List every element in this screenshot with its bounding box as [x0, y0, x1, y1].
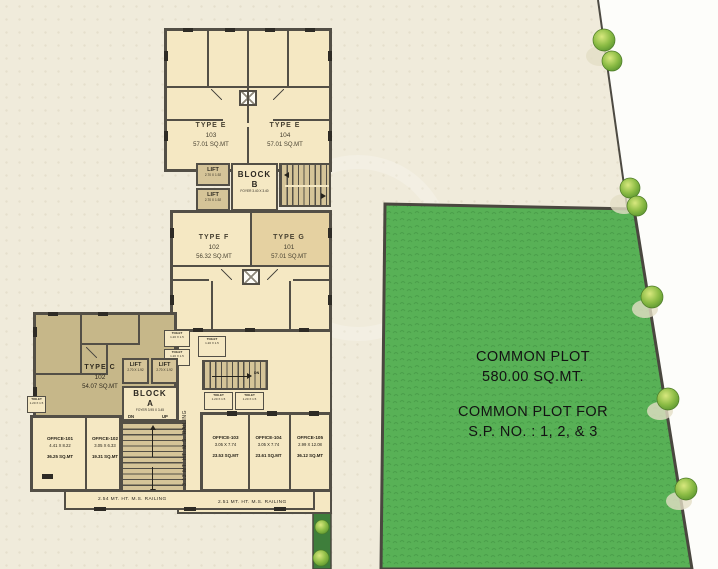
- stair-arrow-icon: [150, 425, 156, 430]
- stair-stem: [212, 376, 248, 377]
- column-mark: [94, 507, 106, 511]
- common-plot-name: COMMON PLOT: [425, 348, 641, 368]
- common-plot-for-line1: COMMON PLOT FOR: [425, 403, 641, 423]
- block-letter: A: [122, 399, 178, 409]
- office-102-label: OFFICE-102 3.05 X 6.33 19.31 SQ.MT: [88, 436, 122, 461]
- stair-dn-label: DN: [128, 414, 134, 419]
- office-name: OFFICE-102: [88, 436, 122, 443]
- wall: [293, 279, 329, 281]
- stair-arrow-icon: [321, 193, 326, 199]
- door-swing: [221, 269, 232, 280]
- wall: [138, 315, 140, 343]
- tree-icon: [675, 478, 697, 500]
- toilet-box: TOILET 1.20 X 1.5: [235, 392, 264, 410]
- duct-shaft: [242, 269, 260, 285]
- window-mark: [193, 328, 203, 332]
- tree-icon: [657, 388, 679, 410]
- site-plan: COMMON PLOT 580.00 SQ.MT. COMMON PLOT FO…: [0, 0, 718, 569]
- door-swing: [86, 347, 97, 358]
- tree-icon: [602, 51, 622, 71]
- window-mark: [33, 327, 37, 337]
- column-mark: [274, 507, 286, 511]
- unit-area: 57.01 SQ.MT: [255, 253, 323, 262]
- lift-a1: LIFT 2.70 X 1.92: [122, 358, 149, 384]
- door-swing: [273, 89, 284, 100]
- offices-101-102: OFFICE-101 4.41 X 8.22 36.25 SQ.MT OFFIC…: [30, 415, 122, 492]
- railing-label-left: 2.54 MT. HT. M.S. RAILING: [98, 497, 167, 502]
- tree-icon: [641, 286, 663, 308]
- lift-dims: 2.70 X 1.92: [124, 368, 147, 372]
- bush-icon: [315, 520, 329, 534]
- lift-dims: 2.70 X 1.92: [153, 368, 176, 372]
- stair-up-label: UP: [162, 414, 168, 419]
- block-b-label: BLOCK B FOYER 3.40 X 3.40: [231, 170, 278, 194]
- office-area: 36.12 SQ.MT: [290, 453, 330, 460]
- toilet-dims: 1.20 X 1.5: [28, 402, 45, 406]
- unit-number: 101: [255, 243, 323, 252]
- common-plot-area-text: 580.00 SQ.MT.: [425, 368, 641, 388]
- office-name: OFFICE-103: [204, 435, 247, 442]
- door-mark: [227, 411, 237, 416]
- unit-label-type-e-103: TYPE E 103 57.01 SQ.MT: [179, 121, 243, 149]
- office-dims: 3.05 X 6.33: [88, 443, 122, 449]
- wall: [250, 213, 252, 267]
- window-mark: [170, 228, 174, 238]
- toilet-box: TOILET 1.20 X 1.5: [204, 392, 233, 410]
- offices-103-105: OFFICE-103 3.05 X 7.74 23.53 SQ.MT OFFIC…: [200, 412, 332, 492]
- unit-number: 103: [179, 131, 243, 140]
- building-block-b-floor: TYPE E 103 57.01 SQ.MT TYPE E 104 57.01 …: [164, 28, 332, 172]
- unit-area: 56.32 SQ.MT: [181, 253, 247, 262]
- wall: [247, 31, 249, 123]
- toilet-box: TOILET 1.20 X 1.5: [198, 336, 226, 357]
- window-mark: [328, 228, 332, 238]
- wall: [80, 343, 140, 345]
- toilet-dims: 1.20 X 1.5: [165, 336, 189, 340]
- window-mark: [328, 131, 332, 141]
- window-mark: [170, 295, 174, 305]
- tree-icon: [620, 178, 640, 198]
- unit-number: 102: [181, 243, 247, 252]
- window-mark: [183, 28, 193, 32]
- lift-a2: LIFT 2.70 X 1.92: [151, 358, 178, 384]
- window-mark: [98, 312, 108, 316]
- wall: [173, 279, 209, 281]
- door-swing: [211, 89, 222, 100]
- tree-icon: [593, 29, 615, 51]
- toilet-dims: 1.20 X 1.5: [205, 398, 232, 402]
- unit-type: TYPE E: [253, 121, 317, 131]
- toilet-dims: 1.20 X 1.5: [236, 398, 263, 402]
- tree-icon: [627, 196, 647, 216]
- office-name: OFFICE-105: [290, 435, 330, 442]
- lift-dims: 2.70 X 1.92: [198, 173, 228, 177]
- stair-dn-label: DN: [254, 371, 259, 375]
- office-101-label: OFFICE-101 4.41 X 8.22 36.25 SQ.MT: [36, 436, 84, 461]
- wall: [207, 31, 209, 88]
- common-plot-for-line2: S.P. NO. : 1, 2, & 3: [425, 423, 641, 443]
- wall: [289, 281, 291, 329]
- lift-dims: 2.70 X 1.92: [198, 198, 228, 202]
- foyer-dims: FOYER 3.95 X 3.45: [122, 409, 178, 413]
- unit-type: TYPE E: [179, 121, 243, 131]
- railing-label-side: 3.13 MT. HT. M.S. RAILING: [182, 385, 193, 510]
- unit-type: TYPE F: [181, 233, 247, 243]
- unit-area: 57.01 SQ.MT: [253, 141, 317, 150]
- stair-stem: [152, 467, 153, 491]
- window-mark: [48, 312, 58, 316]
- foyer-dims: FOYER 3.40 X 3.40: [231, 190, 278, 194]
- stair-landing: [285, 185, 329, 187]
- office-103-label: OFFICE-103 3.05 X 7.74 23.53 SQ.MT: [204, 435, 247, 460]
- office-dims: 3.05 X 7.74: [249, 442, 288, 448]
- window-mark: [328, 51, 332, 61]
- window-mark: [245, 328, 255, 332]
- common-plot-label: COMMON PLOT 580.00 SQ.MT. COMMON PLOT FO…: [425, 348, 641, 442]
- toilet-dims: 1.20 X 1.5: [199, 342, 225, 346]
- office-area: 23.53 SQ.MT: [204, 453, 247, 460]
- block-letter: B: [231, 180, 278, 190]
- office-area: 19.31 SQ.MT: [88, 454, 122, 461]
- unit-area: 57.01 SQ.MT: [179, 141, 243, 150]
- office-dims: 4.41 X 8.22: [36, 443, 84, 449]
- railing-label-right: 2.51 MT. HT. M.S. RAILING: [218, 500, 287, 505]
- wall: [173, 265, 329, 267]
- block-word: BLOCK: [122, 389, 178, 399]
- door-mark: [42, 474, 53, 479]
- unit-label-type-f-102: TYPE F 102 56.32 SQ.MT: [181, 233, 247, 261]
- window-mark: [328, 295, 332, 305]
- window-mark: [299, 328, 309, 332]
- block-a-label: BLOCK A FOYER 3.95 X 3.45: [122, 389, 178, 413]
- office-name: OFFICE-104: [249, 435, 288, 442]
- window-mark: [164, 51, 168, 61]
- office-dims: 2.99 X 12.08: [290, 442, 330, 448]
- stairs-upper: [202, 360, 268, 390]
- lift-b1: LIFT 2.70 X 1.92: [196, 163, 230, 186]
- window-mark: [305, 28, 315, 32]
- lift-b2: LIFT 2.70 X 1.92: [196, 188, 230, 211]
- door-swing: [267, 269, 278, 280]
- door-mark: [267, 411, 277, 416]
- bush-icon: [313, 550, 329, 566]
- building-type-f-g: TYPE F 102 56.32 SQ.MT TYPE G 101 57.01 …: [170, 210, 332, 332]
- window-mark: [164, 131, 168, 141]
- unit-label-type-g-101: TYPE G 101 57.01 SQ.MT: [255, 233, 323, 261]
- toilet-box: TOILET 1.20 X 1.5: [27, 396, 46, 413]
- unit-number: 104: [253, 131, 317, 140]
- block-word: BLOCK: [231, 170, 278, 180]
- office-dims: 3.05 X 7.74: [204, 442, 247, 448]
- office-104-label: OFFICE-104 3.05 X 7.74 23.61 SQ.MT: [249, 435, 288, 460]
- stair-arrow-icon: [247, 373, 252, 379]
- wall: [287, 31, 289, 88]
- stair-stem: [152, 429, 153, 457]
- door-mark: [309, 411, 319, 416]
- window-mark: [265, 28, 275, 32]
- unit-type: TYPE G: [255, 233, 323, 243]
- office-105-label: OFFICE-105 2.99 X 12.08 36.12 SQ.MT: [290, 435, 330, 460]
- toilet-box: TOILET 1.20 X 1.5: [164, 330, 190, 347]
- unit-label-type-e-104: TYPE E 104 57.01 SQ.MT: [253, 121, 317, 149]
- stair-arrow-icon: [284, 172, 289, 178]
- office-area: 23.61 SQ.MT: [249, 453, 288, 460]
- stairs-block-b: [279, 163, 331, 207]
- wall: [211, 281, 213, 329]
- office-name: OFFICE-101: [36, 436, 84, 443]
- window-mark: [225, 28, 235, 32]
- wall: [85, 418, 87, 489]
- office-area: 36.25 SQ.MT: [36, 454, 84, 461]
